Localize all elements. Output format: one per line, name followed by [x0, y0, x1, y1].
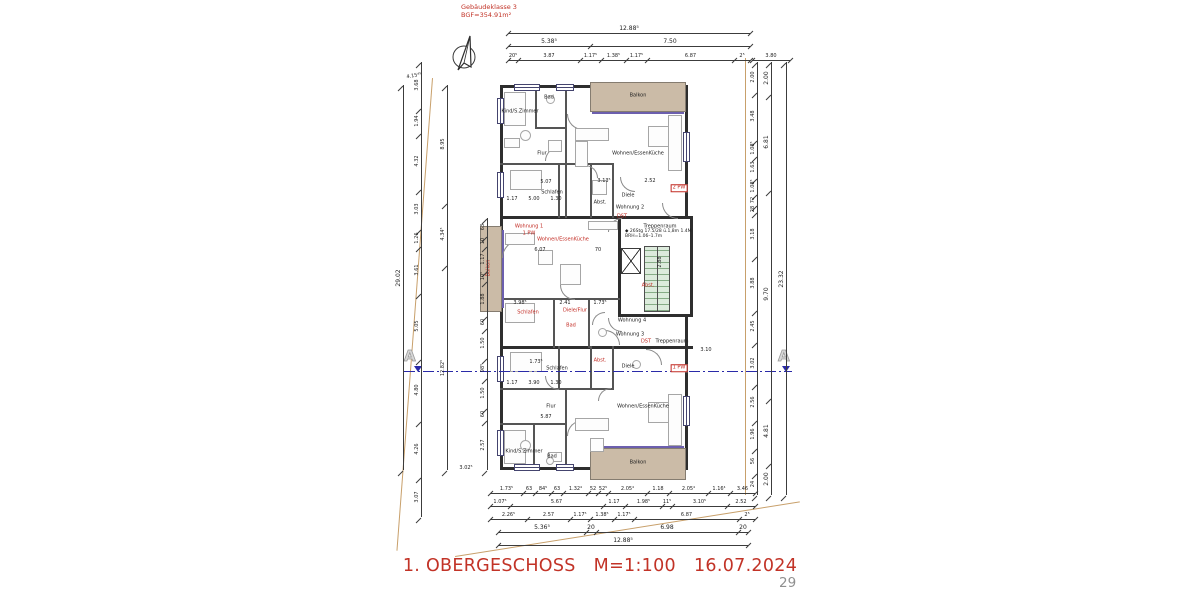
furniture [560, 264, 581, 285]
furniture [520, 130, 531, 141]
dimension-line [403, 85, 404, 470]
room-label: Diele [622, 364, 635, 370]
dimension-value: 2.00 [750, 60, 756, 94]
furniture [504, 138, 520, 148]
property-boundary-line [745, 58, 746, 495]
dimension-tick [482, 470, 488, 476]
dimension-value: 3.13⁵ [587, 178, 621, 184]
interior-wall [612, 165, 614, 218]
dimension-value: 2.45 [750, 309, 756, 343]
dimension-value: 2.05⁴ [672, 486, 706, 492]
dimension-line [757, 62, 758, 495]
dimension-value: 9.70 [764, 277, 770, 311]
section-line [404, 371, 792, 372]
room-label: 1 PW [523, 231, 536, 237]
dimension-value: 29.02 [396, 261, 402, 295]
dimension-line [508, 60, 750, 61]
furniture [575, 418, 609, 431]
dimension-value: 2.56 [750, 385, 756, 419]
dimension-line [508, 33, 750, 34]
dimension-value: 3.88 [750, 266, 756, 300]
stair-spec-line2: BRH=1.06–1.7m [625, 234, 692, 239]
dimension-tick [766, 495, 772, 501]
dimension-value: 3.98⁵ [503, 300, 537, 306]
dimension-line [490, 506, 755, 507]
interior-wall [612, 346, 614, 390]
dimension-value: 7.50 [653, 39, 687, 45]
building-class-label: Gebäudeklasse 3 [461, 3, 517, 11]
room-label: 2 PW [671, 184, 688, 192]
interior-wall [500, 163, 567, 165]
room-label: Bad [544, 95, 554, 101]
dimension-value: 1.30 [539, 380, 573, 386]
section-marker-a-left: A [404, 349, 416, 363]
dimension-value: 1.73⁵ [583, 300, 617, 306]
dimension-tick [442, 470, 448, 476]
furniture [668, 394, 682, 446]
room-label: Wohnen/EssenKüche [537, 237, 589, 243]
window-sill [592, 446, 684, 448]
window [683, 132, 690, 162]
dimension-value: 5.38⁵ [532, 39, 566, 45]
room-label: Wohnung 2 [616, 205, 644, 211]
room-label: Diele [622, 193, 635, 199]
dimension-line [421, 62, 422, 517]
dimension-value: 3.48 [750, 99, 756, 133]
dimension-value: 2⁵ [730, 512, 764, 518]
dimension-value: 23.32 [779, 262, 785, 296]
window [514, 464, 540, 471]
dimension-value: 2.57 [532, 512, 566, 518]
dimension-value: 5.07 [529, 179, 563, 185]
window [514, 84, 540, 91]
room-label: Wohnen/EssenKüche [612, 151, 664, 157]
room-label: Flur [537, 151, 547, 157]
dimension-value: 6.87 [670, 512, 704, 518]
dimension-value: 6.07 [523, 247, 557, 253]
dimension-value: 4.34⁵ [440, 217, 446, 251]
elevator-shaft [621, 248, 641, 274]
furniture [668, 115, 682, 171]
dimension-value: 2.52 [633, 178, 667, 184]
dimension-tick [747, 44, 753, 50]
room-label: Wohnung 3 [616, 332, 644, 338]
interior-wall [535, 85, 537, 129]
dimension-line [752, 60, 790, 61]
room-label: 1 PW [671, 364, 688, 372]
interior-wall [535, 127, 567, 129]
furniture [590, 438, 604, 452]
dimension-value: 12.88⁵ [606, 538, 640, 544]
room-label: Bad [566, 323, 576, 329]
dimension-value: 1.30 [539, 196, 573, 202]
floor-plan-page: Gebäudeklasse 3 BGF=354.91m² AABalkonKin… [0, 0, 1200, 600]
date-label: 16.07.2024 [694, 556, 797, 576]
dimension-value: 11⁵ [650, 499, 684, 505]
furniture [588, 221, 618, 230]
dimension-value: 2.57 [480, 428, 486, 462]
dimension-value: 20⁵ [496, 53, 530, 59]
dimension-line [508, 46, 750, 47]
dimension-value: 2.88 [657, 245, 663, 279]
room-label: DST [617, 214, 627, 220]
window [497, 172, 504, 198]
dimension-value: 12.82⁵ [440, 351, 446, 385]
interior-wall [533, 425, 535, 469]
window [556, 464, 574, 471]
dimension-line [487, 218, 488, 470]
dimension-tick [416, 517, 422, 523]
dimension-value: 1.94 [414, 104, 420, 138]
dimension-value: 3.10 [689, 347, 723, 353]
room-label: DST [641, 339, 651, 345]
dimension-tick [781, 495, 787, 501]
furniture [575, 141, 588, 167]
dimension-line [498, 545, 748, 546]
dimension-value: 4.26 [414, 432, 420, 466]
gross-floor-area-label: BGF=354.91m² [461, 11, 517, 19]
scale-label: M=1:100 [594, 556, 676, 576]
dimension-value: 3.68 [414, 68, 420, 102]
dimension-line [490, 519, 755, 520]
dimension-value: 4.80 [414, 373, 420, 407]
dimension-value: 20 [726, 525, 760, 531]
interior-wall [565, 390, 567, 469]
dimension-value: 20 [574, 525, 608, 531]
dimension-value: 3.80 [754, 53, 788, 59]
dimension-value: 5.87 [529, 414, 563, 420]
room-label: Balkon [630, 93, 647, 99]
room-label: Bad [547, 454, 557, 460]
north-arrow-icon [449, 34, 483, 74]
room-label: Balkon [630, 460, 647, 466]
room-label: Kind/S.Zimmer [501, 109, 538, 115]
dimension-value: 3.02⁵ [449, 465, 483, 471]
dimension-line [490, 493, 755, 494]
dimension-value: 3.10⁵ [683, 499, 717, 505]
room-label: Treppenraum [655, 339, 688, 345]
room-label: Schlafen [541, 190, 563, 196]
dimension-value: 2.05⁴ [611, 486, 645, 492]
dimension-value: 3.02 [750, 346, 756, 380]
dimension-line [498, 532, 748, 533]
dimension-value: 12.88⁵ [612, 26, 646, 32]
interior-wall [590, 346, 592, 390]
window [497, 356, 504, 382]
dimension-tick [745, 543, 751, 549]
dimension-value: 6.87 [674, 53, 708, 59]
dimension-value: 60 [480, 397, 486, 431]
room-label: Wohnen/EssenKüche [617, 404, 669, 410]
drawing-header: Gebäudeklasse 3 BGF=354.91m² [461, 3, 517, 19]
dimension-value: 5.36⁵ [525, 525, 559, 531]
room-label: Schlafen [546, 366, 568, 372]
floor-title: 1. OBERGESCHOSS [403, 556, 576, 576]
room-label: Kind/S.Zimmer [505, 449, 542, 455]
door-swing [592, 312, 605, 325]
room-label: Schlafen [517, 310, 539, 316]
dimension-value: 3.07 [414, 480, 420, 514]
window [497, 430, 504, 456]
room-label: Abst. [594, 200, 607, 206]
page-number: 29 [779, 575, 796, 591]
furniture [575, 128, 609, 141]
room-label: Flur [546, 404, 556, 410]
wall [500, 216, 693, 219]
furniture [598, 328, 607, 337]
section-marker-a-right: A [778, 349, 790, 363]
dimension-line [771, 62, 772, 495]
room-label: Wohnung 1 [515, 224, 543, 230]
dimension-value: 3.61 [414, 253, 420, 287]
dimension-value: 6.98 [650, 525, 684, 531]
dimension-line [786, 62, 787, 495]
window-sill [502, 230, 504, 308]
window-sill [592, 112, 684, 114]
window [556, 84, 574, 91]
drawing-title-block: 1. OBERGESCHOSSM=1:10016.07.2024 [0, 556, 1200, 576]
room-label: Diele/Flur [563, 308, 587, 314]
dimension-value: 4.32 [414, 144, 420, 178]
furniture [548, 140, 562, 152]
room-label: Abst. [642, 283, 655, 289]
dimension-tick [787, 58, 793, 64]
dimension-value: 6.81 [764, 125, 770, 159]
dimension-value: 70 [581, 247, 615, 253]
furniture [648, 126, 669, 147]
dimension-value: 2.00 [764, 61, 770, 95]
dimension-value: 1.73⁵ [519, 359, 553, 365]
room-label: Wohnung 4 [618, 318, 646, 324]
interior-wall [500, 423, 567, 425]
dimension-value: 2.26⁵ [492, 512, 526, 518]
dimension-value: 5.05 [414, 309, 420, 343]
wall [500, 346, 693, 349]
dimension-value: 3.18 [750, 217, 756, 251]
window [683, 396, 690, 426]
dimension-tick [747, 31, 753, 37]
dimension-value: 5.67 [540, 499, 574, 505]
dimension-line [447, 85, 448, 470]
door-swing [646, 349, 662, 365]
dimension-value: 8.95 [440, 127, 446, 161]
stair-spec-note: ◆ 26Stg 17.5/28 ü.1,8m 1.4M BRH=1.06–1.7… [625, 229, 692, 239]
dimension-value: 2.41 [548, 300, 582, 306]
dimension-value: 2.00 [764, 462, 770, 496]
dimension-value: 4.81 [764, 414, 770, 448]
dimension-value: 3.87 [532, 53, 566, 59]
room-label: Abst. [594, 358, 607, 364]
